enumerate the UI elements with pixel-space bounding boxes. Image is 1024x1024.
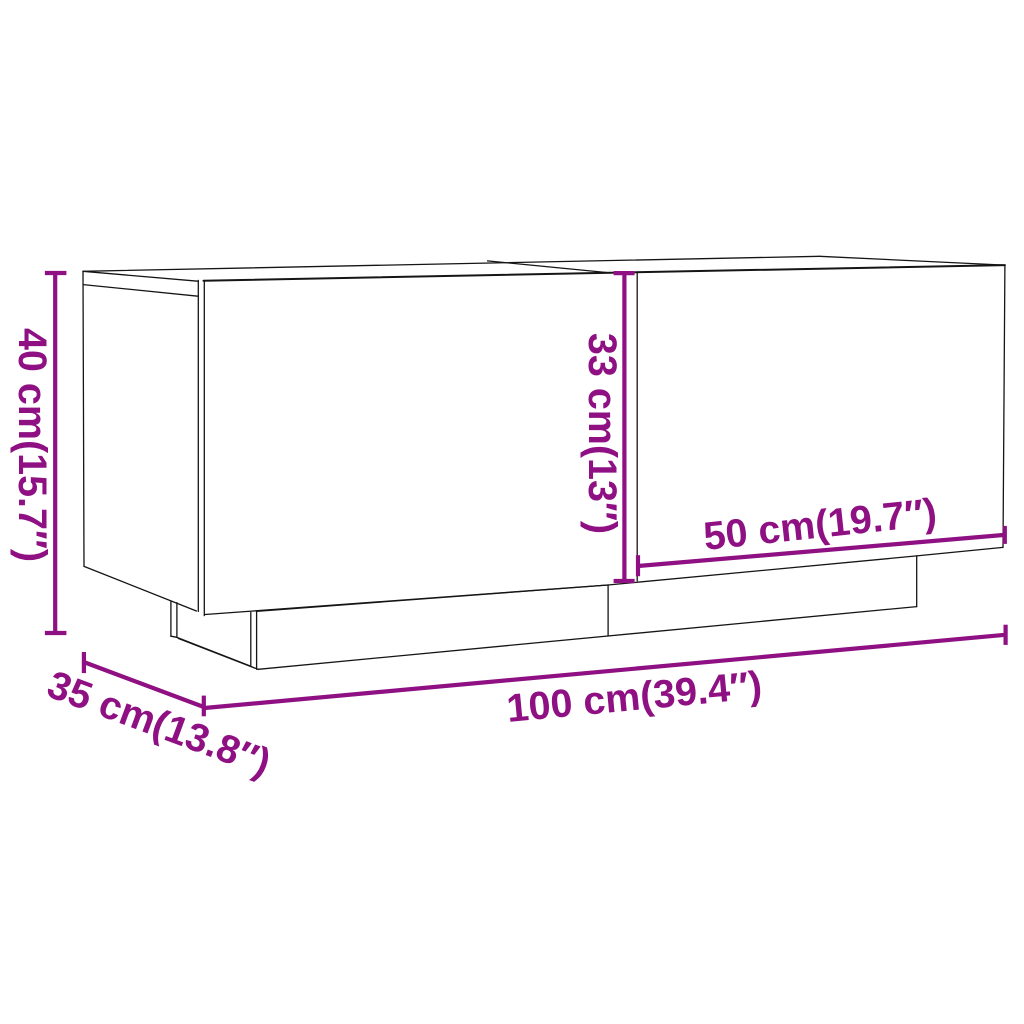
svg-text:40 cm(15.7″): 40 cm(15.7″) xyxy=(10,328,54,562)
svg-text:33 cm(13″): 33 cm(13″) xyxy=(580,333,624,534)
